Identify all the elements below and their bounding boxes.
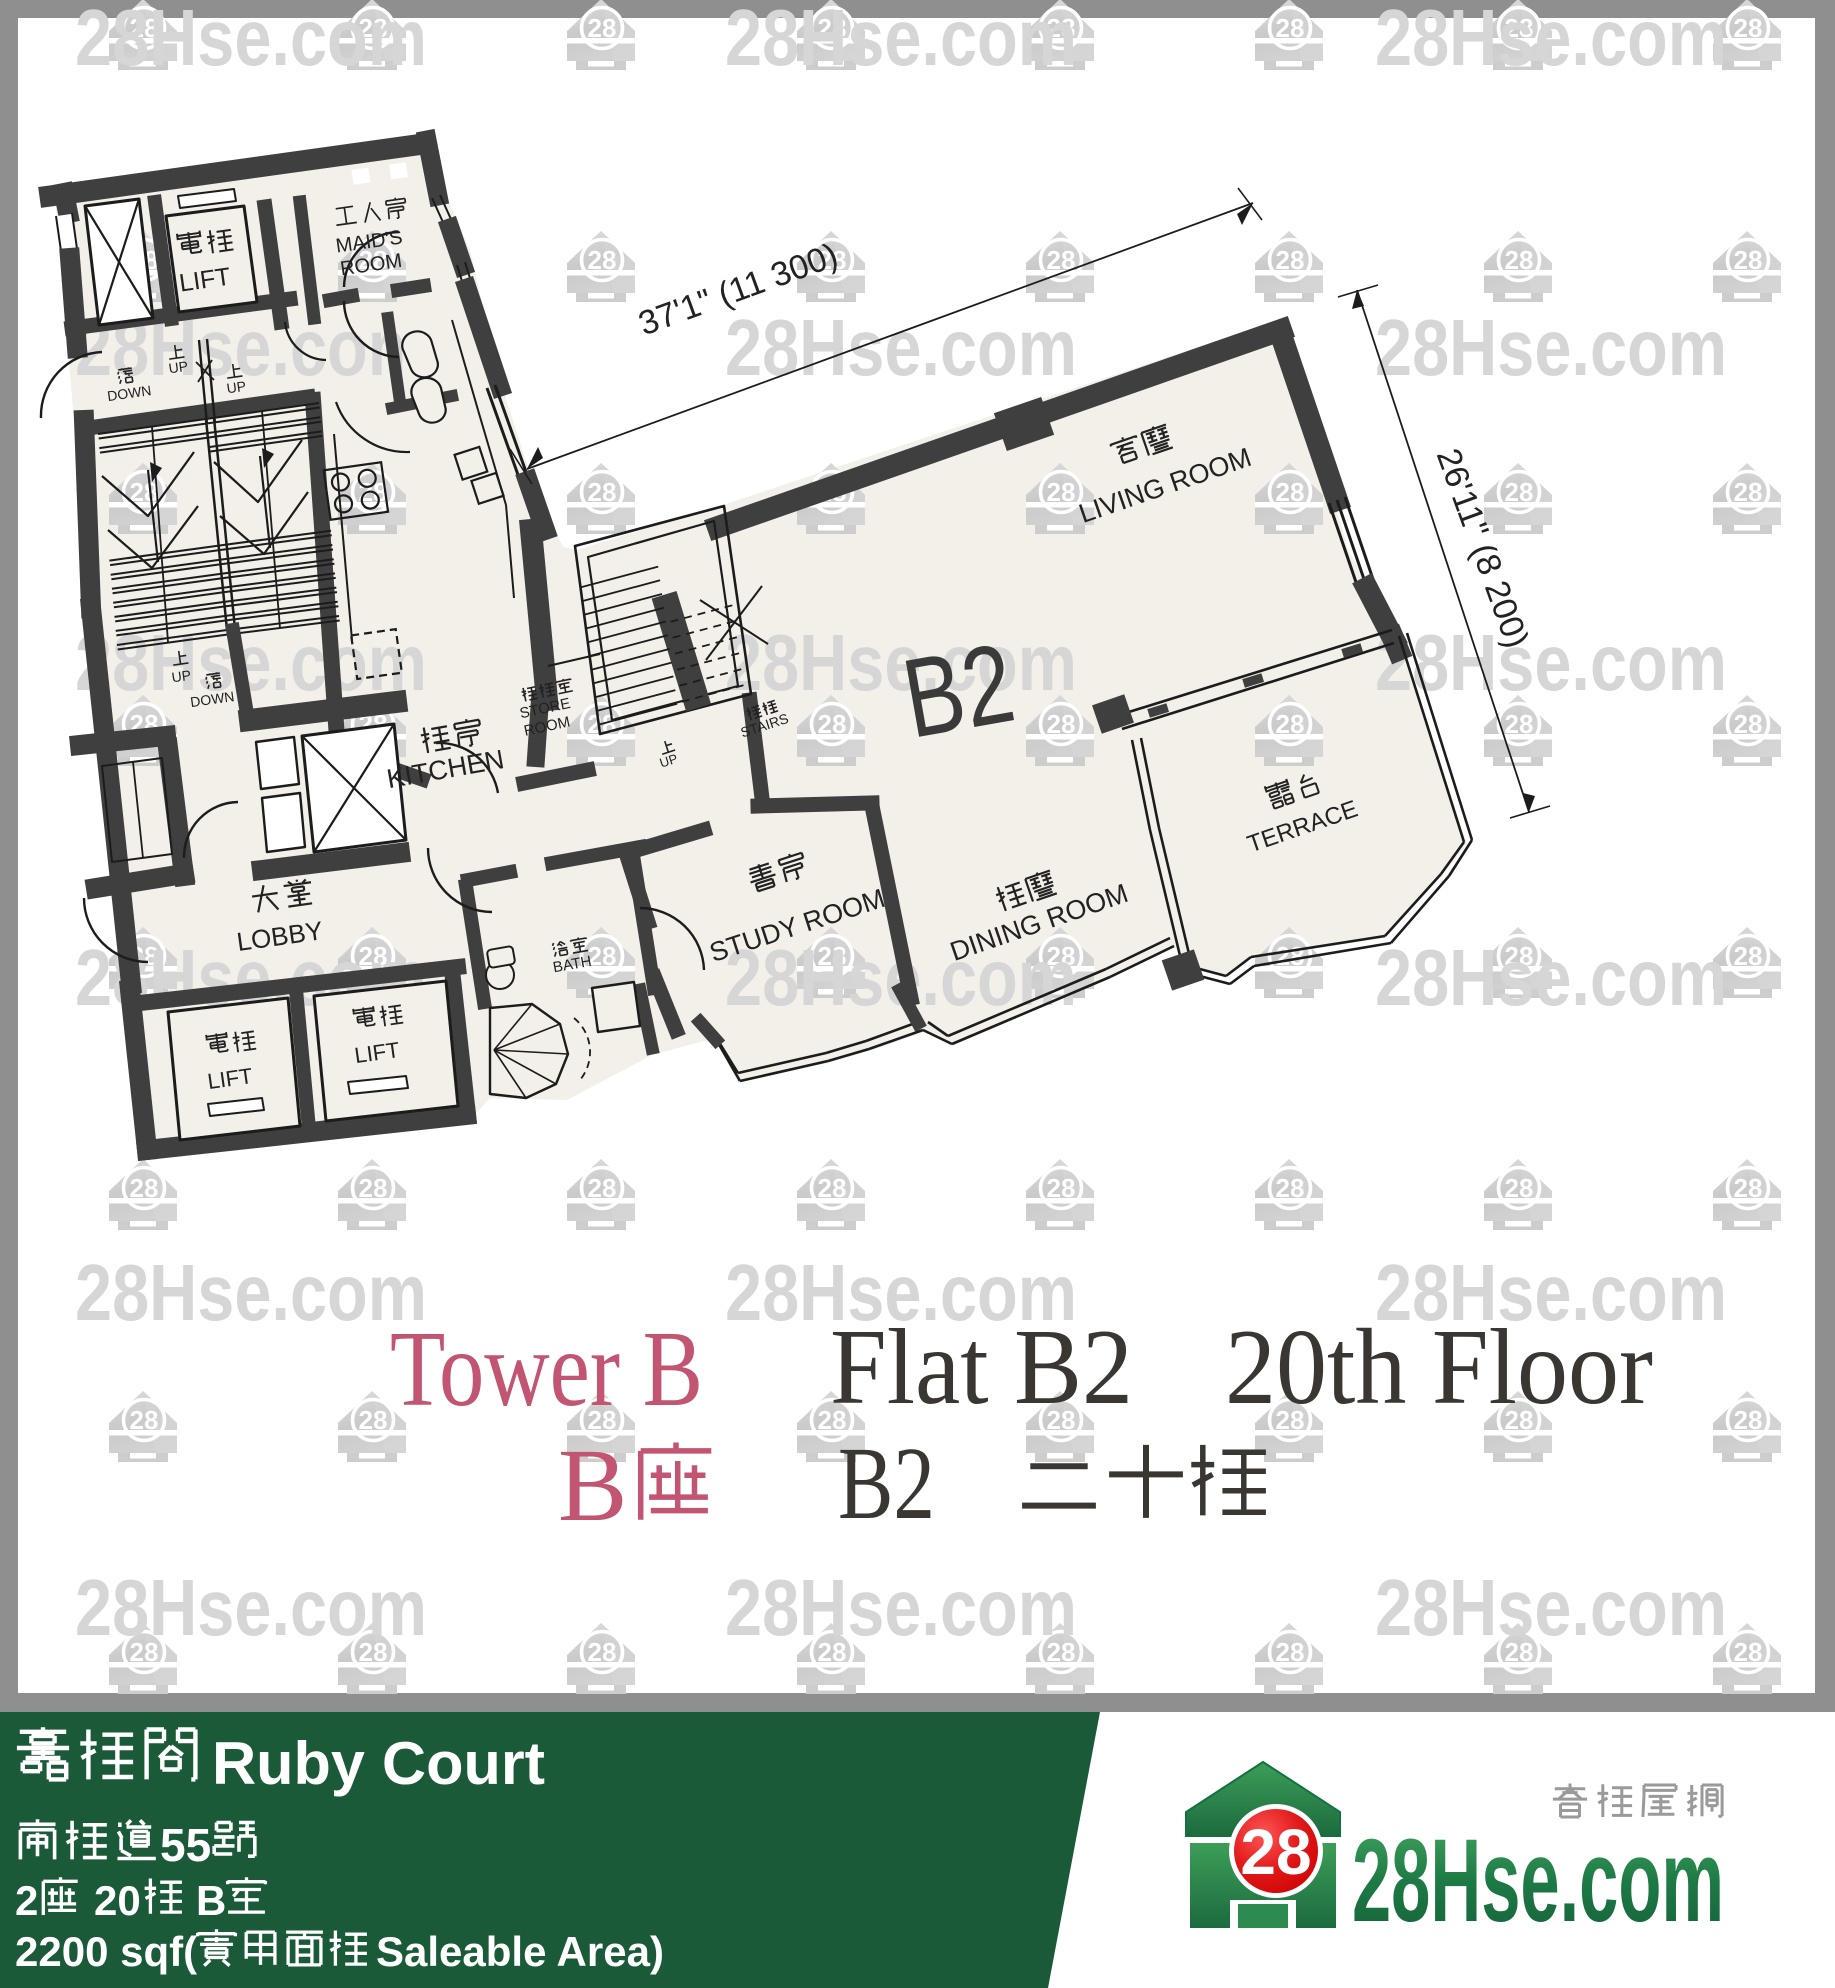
svg-text:B2: B2 — [894, 620, 1022, 762]
svg-text:Flat B2: Flat B2 — [830, 1308, 1133, 1427]
svg-text:20th Floor: 20th Floor — [1225, 1308, 1653, 1427]
svg-text:Tower B: Tower B — [390, 1310, 703, 1429]
svg-text:28Hse.com: 28Hse.com — [1375, 618, 1727, 707]
svg-text:28Hse.com: 28Hse.com — [1375, 933, 1727, 1022]
svg-text:55: 55 — [160, 1819, 211, 1871]
svg-text:2200 sqf(: 2200 sqf( — [15, 1928, 197, 1975]
svg-text:UP: UP — [226, 378, 247, 397]
svg-text:2: 2 — [15, 1877, 38, 1924]
svg-text:28Hse.com: 28Hse.com — [725, 303, 1077, 392]
svg-text:28Hse.com: 28Hse.com — [75, 1248, 427, 1337]
svg-text:Saleable Area): Saleable Area) — [376, 1928, 664, 1975]
svg-text:28Hse.com: 28Hse.com — [1375, 303, 1727, 392]
svg-text:28: 28 — [1240, 1816, 1311, 1888]
svg-text:UP: UP — [171, 667, 192, 686]
svg-text:B2: B2 — [838, 1426, 935, 1541]
svg-text:28Hse.com: 28Hse.com — [75, 0, 427, 82]
svg-text:Ruby Court: Ruby Court — [212, 1730, 545, 1797]
svg-text:28Hse.com: 28Hse.com — [1375, 0, 1727, 82]
svg-text:28Hse.com: 28Hse.com — [75, 1563, 427, 1652]
svg-text:UP: UP — [168, 358, 189, 377]
svg-text:28Hse.com: 28Hse.com — [725, 0, 1077, 82]
svg-text:B: B — [196, 1877, 226, 1924]
svg-text:B: B — [558, 1428, 627, 1543]
svg-text:28Hse.com: 28Hse.com — [1352, 1815, 1724, 1947]
svg-text:28Hse.com: 28Hse.com — [725, 1563, 1077, 1652]
svg-text:20: 20 — [94, 1877, 141, 1924]
svg-text:28Hse.com: 28Hse.com — [1375, 1563, 1727, 1652]
